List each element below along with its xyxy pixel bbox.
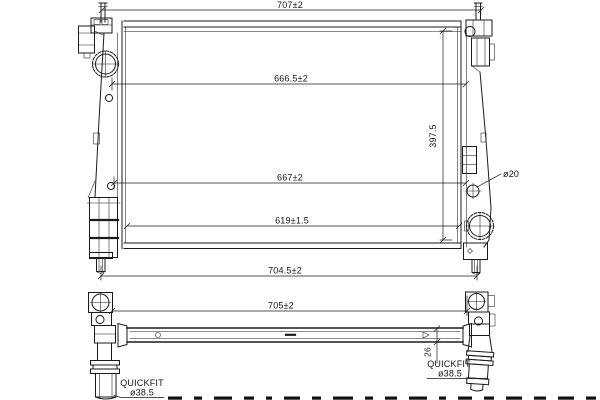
outlet-port — [465, 212, 495, 240]
dim-beam-thickness-label: 26 — [423, 347, 433, 357]
radiator-core — [118, 21, 467, 249]
dim-width-top: 707±2 — [99, 0, 484, 13]
dim-width-lower: 619±1.5 — [124, 216, 462, 229]
right-tank — [463, 3, 495, 274]
dim-width-bottom-label: 704.5±2 — [268, 266, 302, 276]
quickfit-right-diameter: ø38.5 — [438, 369, 462, 379]
dim-width-upper: 666.5±2 — [109, 74, 469, 91]
quickfit-left-callout: QUICKFIT ø38.5 — [114, 378, 164, 398]
dim-overall-width-label: 705±2 — [268, 301, 294, 311]
drawing-canvas: 707±2 666.5±2 667±2 619±1.5 — [0, 0, 600, 400]
quickfit-left-fitting — [91, 361, 120, 400]
quickfit-right-fitting — [464, 351, 494, 392]
right-lower-bracket — [464, 243, 488, 274]
quickfit-left-label: QUICKFIT — [120, 378, 164, 388]
dim-mount-hole: ø20 — [477, 169, 519, 187]
left-tank — [79, 3, 121, 273]
bottom-view: 705±2 26 QUICKFIT ø38.5 QUICKFIT ø38.5 — [89, 292, 496, 399]
side-ribs — [463, 147, 477, 174]
dim-width-lower-label: 619±1.5 — [275, 216, 309, 226]
left-lower-bracket — [87, 181, 120, 273]
dim-mount-hole-label: ø20 — [503, 169, 519, 179]
dim-width-mid: 667±2 — [111, 173, 469, 190]
dim-overall-width: 705±2 — [109, 296, 470, 316]
mount-hole — [465, 183, 481, 199]
cross-beam — [118, 324, 472, 348]
dim-width-mid-label: 667±2 — [277, 173, 303, 183]
dim-width-top-label: 707±2 — [277, 0, 303, 10]
filler-neck — [92, 51, 119, 77]
quickfit-left-diameter: ø38.5 — [130, 388, 154, 398]
dim-core-height: 397.5 — [428, 28, 452, 243]
screw-upper-left — [106, 95, 113, 102]
dim-width-upper-label: 666.5±2 — [274, 74, 308, 84]
dim-width-bottom: 704.5±2 — [98, 266, 480, 281]
dim-core-height-label: 397.5 — [428, 124, 438, 148]
quickfit-right-callout: QUICKFIT ø38.5 — [427, 359, 488, 379]
right-end-assembly — [464, 292, 495, 392]
main-view: 707±2 666.5±2 667±2 619±1.5 — [79, 0, 520, 280]
bottom-striped-bar — [168, 397, 596, 400]
quickfit-right-label: QUICKFIT — [427, 359, 471, 369]
radiator-technical-drawing: 707±2 666.5±2 667±2 619±1.5 — [0, 0, 600, 400]
screw-bottom-left — [96, 316, 104, 324]
